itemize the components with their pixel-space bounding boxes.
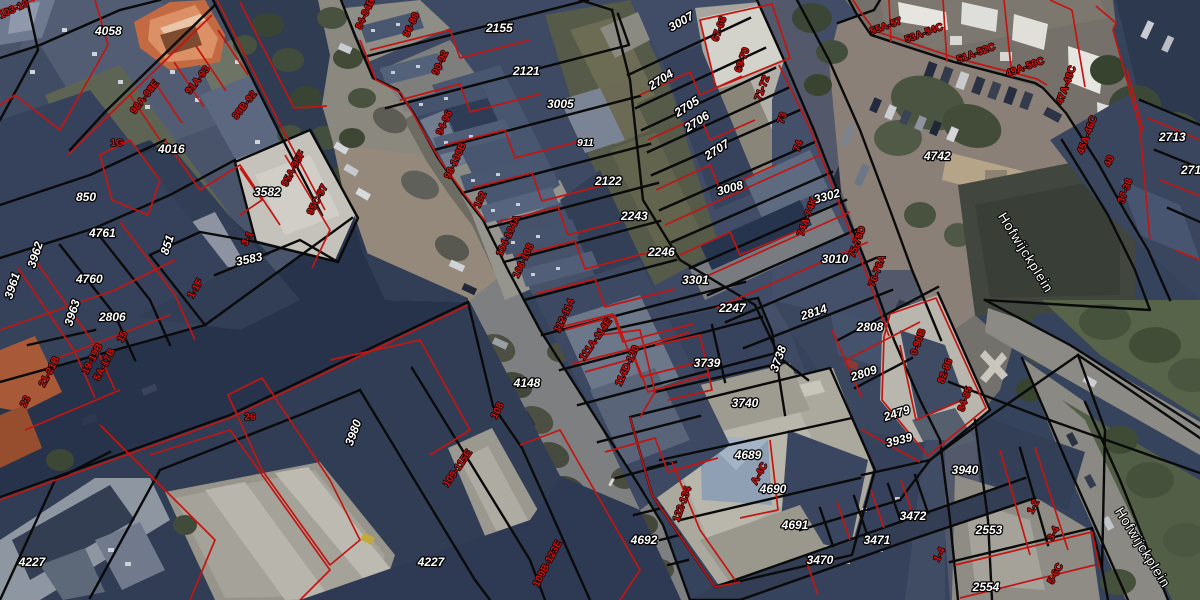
- svg-text:4692: 4692: [630, 533, 658, 547]
- svg-text:4148: 4148: [513, 376, 541, 390]
- svg-text:4760: 4760: [75, 272, 103, 286]
- svg-text:850: 850: [76, 190, 96, 204]
- svg-text:4016: 4016: [157, 142, 185, 156]
- svg-text:2155: 2155: [485, 21, 513, 35]
- svg-text:4227: 4227: [18, 555, 47, 569]
- svg-text:2713: 2713: [1158, 130, 1186, 144]
- svg-text:2247: 2247: [718, 301, 747, 315]
- svg-text:2554: 2554: [972, 580, 1000, 594]
- svg-text:4690: 4690: [759, 482, 787, 496]
- svg-text:3739: 3739: [694, 356, 721, 370]
- svg-text:3010: 3010: [822, 252, 849, 266]
- svg-text:3005: 3005: [547, 97, 574, 111]
- svg-text:4742: 4742: [923, 149, 951, 163]
- svg-text:911: 911: [577, 137, 594, 149]
- svg-text:2246: 2246: [647, 245, 675, 259]
- svg-text:4761: 4761: [88, 226, 116, 240]
- svg-text:3471: 3471: [864, 533, 891, 547]
- svg-text:1G: 1G: [110, 138, 124, 149]
- svg-text:3582: 3582: [254, 185, 281, 199]
- svg-text:2122: 2122: [594, 174, 622, 188]
- svg-text:3301: 3301: [682, 273, 709, 287]
- svg-text:26: 26: [244, 412, 256, 423]
- svg-text:2808: 2808: [856, 320, 884, 334]
- svg-text:4058: 4058: [94, 24, 122, 38]
- svg-text:4689: 4689: [734, 448, 762, 462]
- svg-text:271: 271: [1180, 163, 1200, 177]
- svg-text:2553: 2553: [975, 523, 1003, 537]
- svg-text:3940: 3940: [952, 463, 979, 477]
- svg-text:2806: 2806: [98, 310, 126, 324]
- svg-text:4227: 4227: [417, 555, 446, 569]
- svg-text:2121: 2121: [512, 64, 540, 78]
- svg-text:3470: 3470: [807, 553, 834, 567]
- svg-text:3740: 3740: [732, 396, 759, 410]
- svg-text:3472: 3472: [900, 509, 927, 523]
- svg-text:4691: 4691: [781, 518, 809, 532]
- svg-text:2243: 2243: [620, 209, 648, 223]
